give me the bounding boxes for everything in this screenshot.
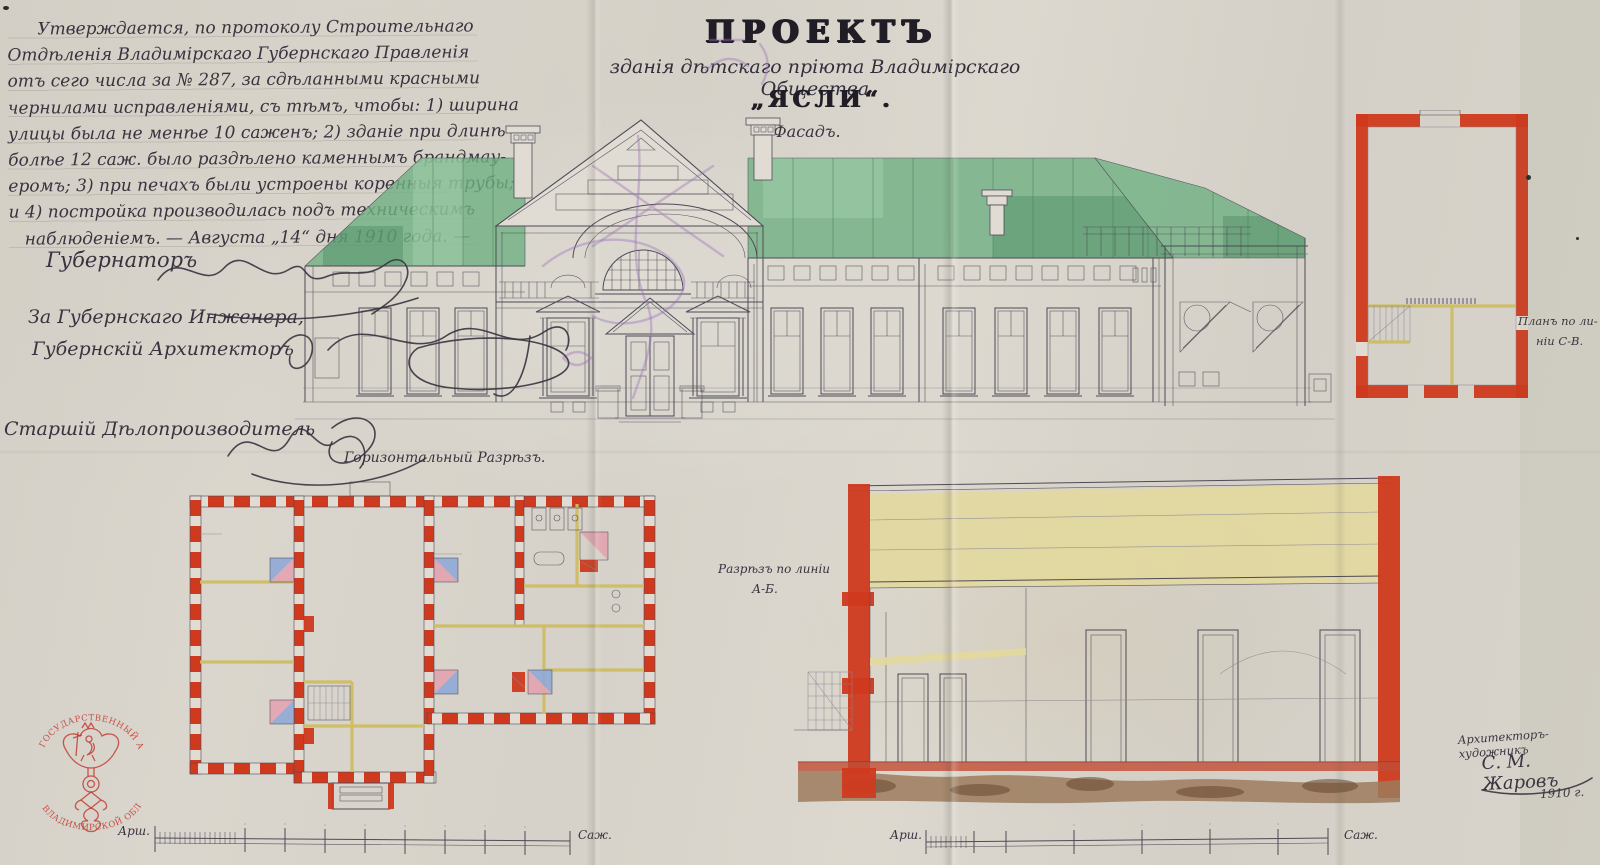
plan-staircase xyxy=(308,686,350,720)
side-plan-label: Планъ по ли- xyxy=(1518,314,1598,328)
engineer-label-line1: За Губернскаго Инженера, xyxy=(28,306,304,328)
facade-right-pavilion xyxy=(1161,238,1331,406)
plan-stoves xyxy=(270,532,608,744)
archival-drawing-sheet: Утверждается, по протоколу Строительнаго… xyxy=(0,0,1600,865)
fretwork-bracket xyxy=(1253,302,1303,352)
plan-porches xyxy=(328,482,394,809)
architect-signature xyxy=(268,292,588,407)
svg-text:ВЛАДИМИРСКОЙ ОБЛАСТИ: ВЛАДИМИРСКОЙ ОБЛАСТИ xyxy=(36,688,144,833)
cross-section-drawing xyxy=(790,462,1410,810)
scalebar-left xyxy=(145,818,585,860)
side-plan-walls xyxy=(1356,114,1528,398)
scalebar-right xyxy=(918,820,1338,862)
scalebar-left-unit-sazhens: Саж. xyxy=(578,828,612,842)
section-label: А-Б. xyxy=(752,582,778,596)
approval-line: отъ сего числа за № 287, за сдѣланными к… xyxy=(8,66,478,95)
side-plan-label: ніи С-В. xyxy=(1536,334,1583,348)
ink-speck xyxy=(3,6,9,10)
plan-partitions xyxy=(200,504,644,772)
ink-speck xyxy=(1526,175,1531,180)
approval-line: Отдѣленія Владимірскаго Губернскаго Прав… xyxy=(7,40,477,69)
floor-plan-label: Горизонтальный Разрѣзъ. xyxy=(344,450,545,466)
section-roof xyxy=(848,478,1392,588)
purple-pencil-marks xyxy=(700,30,790,100)
architect-year: 1910 г. xyxy=(1540,785,1585,801)
approval-line: Утверждается, по протоколу Строительнаго xyxy=(7,13,477,42)
fretwork-bracket xyxy=(1180,302,1251,352)
section-walls-doors xyxy=(870,588,1378,762)
side-plan-interior xyxy=(1368,301,1516,385)
scalebar-right-unit-sazhens: Саж. xyxy=(1344,828,1378,842)
ink-speck xyxy=(1576,237,1579,240)
engineer-label-line2: Губернскій Архитекторъ xyxy=(32,338,294,360)
side-plan-drawing xyxy=(1348,110,1536,404)
stamp-emblem xyxy=(63,723,118,832)
archive-stamp: ГОСУДАРСТВЕННЫЙ АРХИВ ВЛАДИМИРСКОЙ ОБЛАС… xyxy=(36,688,146,843)
floor-plan-drawing xyxy=(182,474,674,819)
section-floor-foundation xyxy=(798,762,1400,803)
facade-pilasters xyxy=(748,258,1159,402)
plan-exterior-walls xyxy=(190,496,655,783)
stamp-text-bottom: ВЛАДИМИРСКОЙ ОБЛАСТИ xyxy=(36,688,144,833)
